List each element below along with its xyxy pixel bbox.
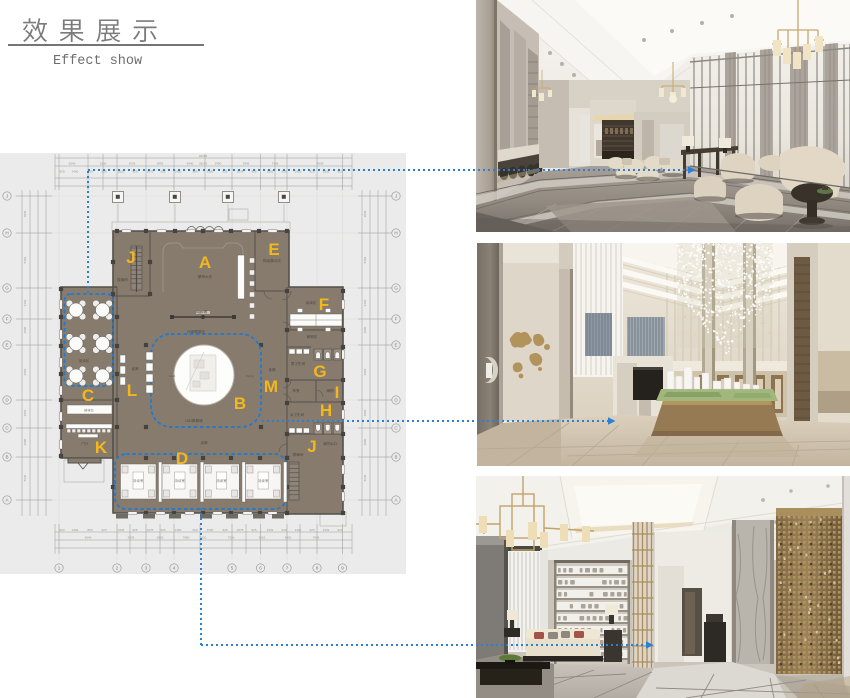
svg-text:E: E — [5, 343, 8, 348]
svg-text:H: H — [320, 401, 332, 420]
svg-text:1625: 1625 — [118, 528, 125, 532]
svg-text:925: 925 — [160, 170, 165, 174]
svg-text:1078: 1078 — [237, 528, 244, 532]
svg-text:2936: 2936 — [243, 162, 250, 166]
svg-text:925: 925 — [251, 528, 256, 532]
svg-text:F: F — [395, 317, 398, 322]
svg-text:920: 920 — [281, 170, 286, 174]
svg-text:925: 925 — [222, 528, 227, 532]
svg-text:3039: 3039 — [128, 536, 135, 540]
svg-text:7530: 7530 — [228, 536, 235, 540]
svg-text:7850: 7850 — [183, 536, 190, 540]
svg-text:I: I — [335, 383, 340, 402]
svg-text:3402: 3402 — [285, 536, 292, 540]
svg-text:1502: 1502 — [267, 170, 274, 174]
svg-text:1402: 1402 — [295, 170, 302, 174]
svg-text:925: 925 — [132, 170, 137, 174]
svg-text:925: 925 — [309, 528, 314, 532]
svg-text:1625: 1625 — [118, 170, 125, 174]
svg-text:1075: 1075 — [147, 528, 154, 532]
svg-text:7836: 7836 — [313, 536, 320, 540]
svg-text:925: 925 — [309, 170, 314, 174]
svg-text:K: K — [95, 438, 108, 457]
svg-text:1500: 1500 — [100, 162, 107, 166]
svg-text:2900: 2900 — [23, 438, 27, 445]
svg-text:920: 920 — [59, 170, 64, 174]
svg-text:1402: 1402 — [295, 528, 302, 532]
svg-text:5640: 5640 — [23, 474, 27, 481]
svg-text:9: 9 — [341, 566, 344, 571]
svg-text:5603: 5603 — [317, 162, 324, 166]
svg-text:2950: 2950 — [215, 162, 222, 166]
svg-text:F: F — [6, 317, 9, 322]
svg-text:1502: 1502 — [323, 170, 330, 174]
svg-text:C: C — [82, 386, 94, 405]
svg-text:bench: bench — [169, 375, 176, 378]
svg-text:3003: 3003 — [23, 409, 27, 416]
svg-text:5403: 5403 — [23, 256, 27, 263]
svg-text:1500: 1500 — [363, 326, 367, 333]
svg-text:J: J — [395, 194, 397, 199]
svg-text:2603: 2603 — [23, 368, 27, 375]
svg-text:920: 920 — [101, 170, 106, 174]
svg-text:1: 1 — [58, 566, 61, 571]
svg-text:3103: 3103 — [363, 299, 367, 306]
svg-text:26203: 26203 — [199, 154, 208, 158]
svg-text:1500: 1500 — [207, 528, 214, 532]
svg-text:D: D — [176, 449, 188, 468]
svg-text:5640: 5640 — [85, 536, 92, 540]
svg-text:3830: 3830 — [23, 210, 27, 217]
svg-text:920: 920 — [337, 528, 342, 532]
svg-text:B: B — [394, 455, 397, 460]
svg-text:3039: 3039 — [129, 162, 136, 166]
svg-text:G: G — [313, 362, 326, 381]
svg-text:B: B — [234, 394, 246, 413]
svg-text:M: M — [264, 377, 278, 396]
svg-text:1450: 1450 — [175, 528, 182, 532]
svg-text:1500: 1500 — [23, 326, 27, 333]
svg-text:925: 925 — [251, 170, 256, 174]
svg-text:800: 800 — [87, 528, 92, 532]
svg-text:960: 960 — [192, 170, 197, 174]
svg-text:3602: 3602 — [259, 536, 266, 540]
svg-text:Parking: Parking — [246, 375, 255, 378]
svg-text:1502: 1502 — [323, 528, 330, 532]
svg-text:5: 5 — [231, 566, 234, 571]
svg-text:1500: 1500 — [207, 170, 214, 174]
svg-text:1450: 1450 — [175, 170, 182, 174]
svg-text:920: 920 — [281, 528, 286, 532]
svg-text:920: 920 — [101, 528, 106, 532]
svg-text:3830: 3830 — [363, 210, 367, 217]
svg-text:2: 2 — [116, 566, 119, 571]
svg-text:A: A — [199, 253, 211, 272]
svg-text:7936: 7936 — [272, 162, 279, 166]
svg-text:960: 960 — [192, 528, 197, 532]
svg-text:1075: 1075 — [147, 170, 154, 174]
svg-text:4: 4 — [173, 566, 176, 571]
svg-text:925: 925 — [160, 528, 165, 532]
svg-text:26203: 26203 — [199, 162, 208, 166]
svg-text:2900: 2900 — [363, 438, 367, 445]
svg-text:1502: 1502 — [267, 528, 274, 532]
svg-text:2620: 2620 — [200, 536, 207, 540]
svg-text:E: E — [268, 240, 279, 259]
svg-text:925: 925 — [132, 528, 137, 532]
svg-text:920: 920 — [337, 170, 342, 174]
svg-text:925: 925 — [222, 170, 227, 174]
svg-text:3: 3 — [145, 566, 148, 571]
svg-text:7: 7 — [286, 566, 289, 571]
svg-text:5640: 5640 — [187, 162, 194, 166]
svg-text:920: 920 — [59, 528, 64, 532]
svg-text:1078: 1078 — [237, 170, 244, 174]
svg-text:1460: 1460 — [72, 170, 79, 174]
svg-text:J: J — [126, 248, 135, 267]
svg-text:2853: 2853 — [157, 162, 164, 166]
svg-text:L: L — [127, 381, 137, 400]
svg-text:2603: 2603 — [363, 368, 367, 375]
svg-text:G: G — [5, 286, 9, 291]
svg-text:F: F — [319, 295, 329, 314]
svg-text:3103: 3103 — [23, 299, 27, 306]
svg-text:800: 800 — [87, 170, 92, 174]
svg-text:E: E — [394, 343, 397, 348]
svg-text:J: J — [307, 437, 316, 456]
svg-text:J: J — [6, 194, 8, 199]
svg-text:G: G — [394, 286, 398, 291]
svg-text:2853: 2853 — [157, 536, 164, 540]
svg-text:1460: 1460 — [72, 528, 79, 532]
svg-text:9240: 9240 — [69, 162, 76, 166]
svg-text:H: H — [394, 231, 397, 236]
svg-text:B: B — [5, 455, 8, 460]
svg-text:8: 8 — [316, 566, 319, 571]
svg-text:5403: 5403 — [363, 256, 367, 263]
svg-text:H: H — [5, 231, 8, 236]
svg-text:5640: 5640 — [363, 474, 367, 481]
svg-text:3003: 3003 — [363, 409, 367, 416]
svg-text:6: 6 — [259, 566, 262, 571]
